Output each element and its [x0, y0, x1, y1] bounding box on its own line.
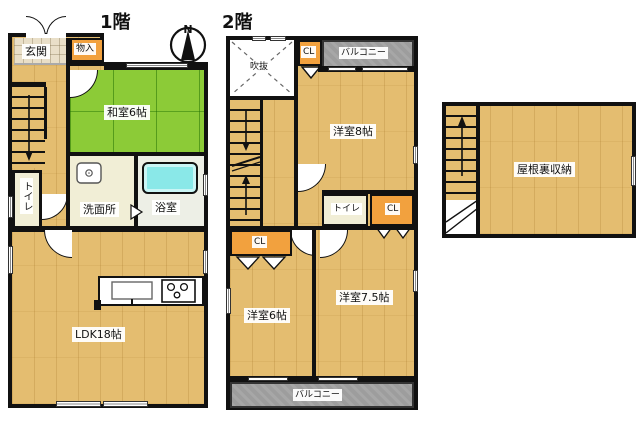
floor-plan: 1階 2階 N 玄関 物入 和室6帖 トイレ — [0, 0, 640, 422]
room8-label: 洋室8帖 — [330, 124, 376, 139]
room75-label: 洋室7.5帖 — [336, 290, 393, 305]
wall — [12, 226, 204, 232]
balcony-bottom-label: バルコニー — [293, 389, 342, 401]
stairs-1f-arrow — [12, 87, 45, 168]
floor2-title: 2階 — [222, 8, 253, 34]
window — [328, 67, 356, 71]
compass-north-label: N — [183, 23, 192, 36]
counter-end-post — [94, 300, 101, 310]
window — [203, 174, 208, 196]
genkan-step — [14, 63, 70, 65]
window — [8, 196, 13, 218]
fukinuke-label: 吹抜 — [248, 61, 270, 73]
attic-storage-label: 屋根裏収納 — [514, 162, 575, 177]
window — [56, 401, 101, 407]
senmenjo-label: 洗面所 — [80, 202, 119, 217]
compass-icon: N — [166, 20, 210, 64]
washitsu-window — [126, 63, 188, 68]
window — [248, 377, 288, 381]
closet-left-label: CL — [252, 236, 267, 248]
window — [631, 156, 636, 186]
bath-door-icon — [130, 204, 144, 220]
window — [413, 270, 418, 292]
stairs-attic-arrow — [446, 106, 478, 200]
window — [203, 250, 208, 274]
stairs-attic-winder — [446, 200, 478, 234]
closet-left-door-icon — [234, 256, 288, 270]
bathroom-label: 浴室 — [152, 200, 180, 215]
floor1-title: 1階 — [100, 8, 131, 34]
wall — [294, 40, 298, 232]
window — [252, 36, 266, 41]
ldk-label: LDK18帖 — [72, 327, 125, 342]
window — [8, 246, 13, 274]
wall — [312, 230, 316, 378]
window — [103, 401, 148, 407]
toilet-2f-label: トイレ — [331, 203, 362, 215]
toilet-1f-label: トイレ — [20, 178, 33, 214]
wall — [70, 60, 104, 66]
bathtub-icon — [142, 162, 198, 194]
washitsu-label: 和室6帖 — [104, 105, 150, 120]
kitchen-counter-icon — [98, 276, 204, 306]
balcony-top-label: バルコニー — [339, 47, 388, 59]
washbasin-icon — [76, 162, 102, 186]
window — [226, 288, 231, 314]
window — [362, 67, 408, 71]
window — [413, 146, 418, 164]
room6-label: 洋室6帖 — [244, 308, 290, 323]
genkan-label: 玄関 — [22, 44, 50, 59]
window — [318, 377, 358, 381]
monoire-label: 物入 — [74, 43, 96, 55]
stairs-2f-arrows — [230, 100, 262, 226]
closet-right-label: CL — [385, 203, 400, 215]
window — [270, 36, 286, 41]
closet-top-label: CL — [301, 46, 316, 58]
